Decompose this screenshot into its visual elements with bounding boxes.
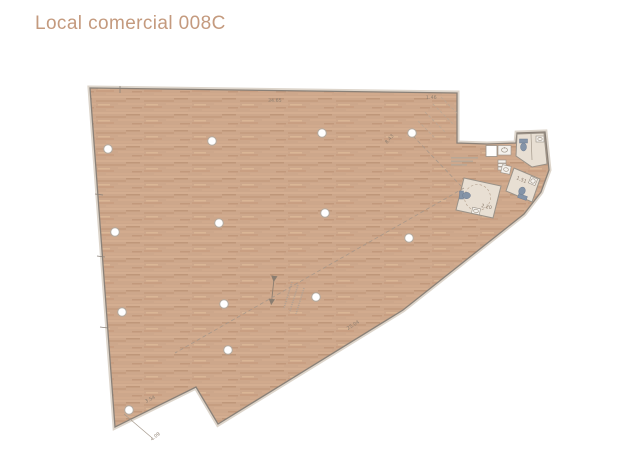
column-dot xyxy=(312,293,321,302)
sink-icon xyxy=(536,136,544,142)
sink-counter xyxy=(498,146,511,156)
toilet-icon xyxy=(463,192,471,198)
floor-area xyxy=(90,88,549,427)
dimension-label: 4.09 xyxy=(150,431,162,442)
column-dot xyxy=(224,346,233,355)
column-dot xyxy=(104,145,113,154)
column-dot xyxy=(408,129,417,138)
toilet-icon xyxy=(520,139,528,143)
vestibule-sink xyxy=(501,165,511,175)
shaft xyxy=(486,146,497,157)
column-dot xyxy=(118,308,127,317)
dimension-label: 1.46 xyxy=(426,95,437,101)
column-dot xyxy=(318,129,327,138)
column-dot xyxy=(220,300,229,309)
dimension-label: 34.65 xyxy=(268,98,282,104)
column-dot xyxy=(125,406,134,415)
column-dot xyxy=(321,209,330,218)
screenshot-root: { "colors": { "title": "#c49a7e", "wood"… xyxy=(0,0,631,450)
column-dot xyxy=(405,234,414,243)
column-dot xyxy=(208,137,217,146)
column-dot xyxy=(111,228,120,237)
sink-icon xyxy=(471,207,480,215)
toilet-icon xyxy=(521,143,527,151)
column-dot xyxy=(215,219,224,228)
sink-icon xyxy=(501,165,511,175)
floor-plan-svg: 34.651.4625.043.544.098.432.201.51 xyxy=(0,0,631,450)
